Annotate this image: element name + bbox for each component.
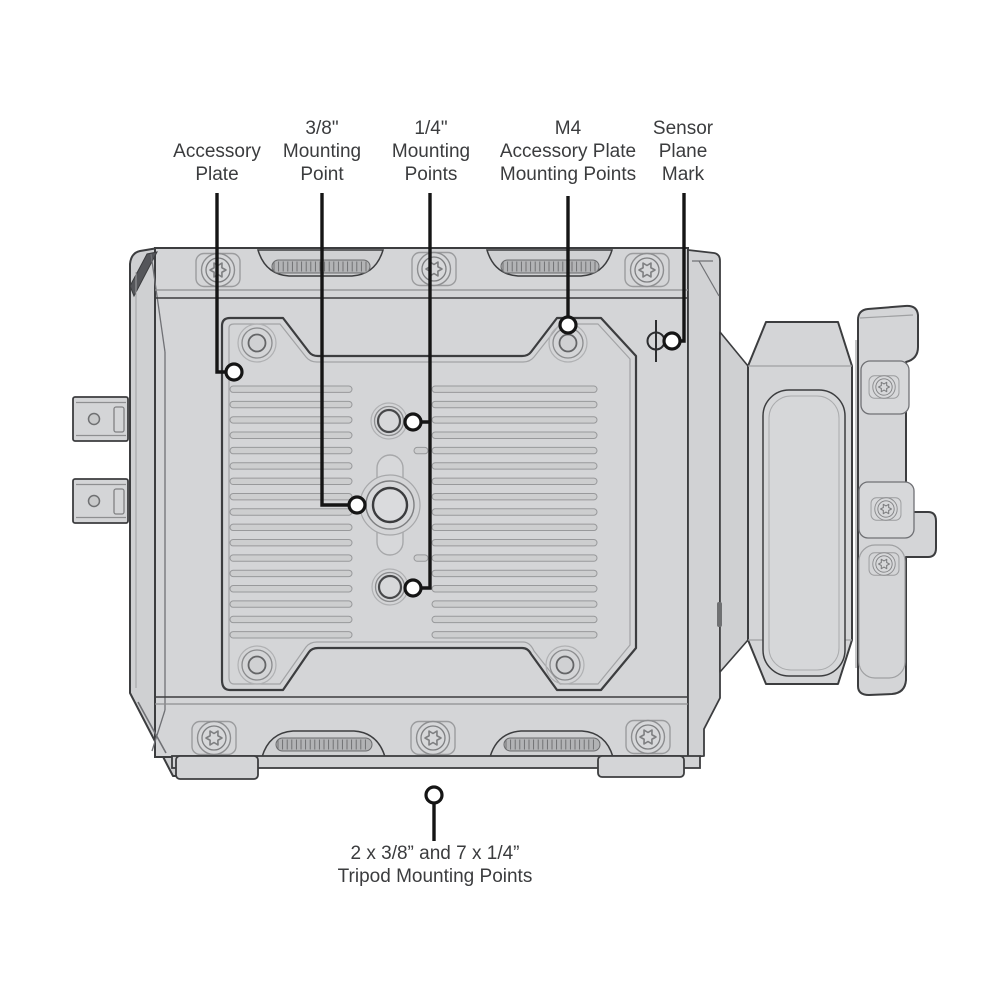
- label-line: 1/4": [392, 117, 470, 140]
- knurl-strip: [501, 260, 599, 273]
- vent-rib: [432, 493, 597, 499]
- vent-rib: [230, 493, 352, 499]
- vent-rib: [432, 432, 597, 438]
- label-line: Mark: [653, 163, 713, 186]
- label-line: Mounting: [283, 140, 361, 163]
- label-line: Mounting Points: [500, 163, 636, 186]
- vent-rib: [432, 417, 597, 423]
- body-right-cap: [688, 250, 720, 757]
- vent-rib: [230, 463, 352, 469]
- label-tripod-mounting-points: 2 x 3/8” and 7 x 1/4” Tripod Mounting Po…: [338, 842, 533, 888]
- vent-rib: [230, 524, 352, 530]
- vent-rib: [432, 616, 597, 622]
- vent-rib: [230, 401, 352, 407]
- leader-endpoint: [560, 317, 576, 333]
- vent-rib: [230, 616, 352, 622]
- vent-rib: [432, 463, 597, 469]
- label-m4-accessory-plate-mounting-points: M4 Accessory Plate Mounting Points: [500, 117, 636, 186]
- vent-rib: [432, 386, 597, 392]
- leader-endpoint: [349, 497, 365, 513]
- vent-rib: [230, 509, 352, 515]
- leader-endpoint: [405, 414, 421, 430]
- label-line: Plate: [173, 163, 261, 186]
- vent-rib: [230, 555, 352, 561]
- vent-rib: [432, 555, 597, 561]
- label-sensor-plane-mark: Sensor Plane Mark: [653, 117, 713, 186]
- bnc-connector-icon: [73, 397, 128, 441]
- vent-rib: [432, 447, 597, 453]
- label-line: Accessory: [173, 140, 261, 163]
- vent-rib: [230, 540, 352, 546]
- vent-rib: [414, 447, 428, 453]
- label-line: Points: [392, 163, 470, 186]
- body-slot-detail: [717, 602, 722, 627]
- vent-rib: [230, 386, 352, 392]
- vent-rib: [432, 632, 597, 638]
- vent-rib: [432, 478, 597, 484]
- bnc-connector-icon: [73, 479, 128, 523]
- vent-rib: [432, 601, 597, 607]
- vent-rib: [230, 570, 352, 576]
- rail-foot: [176, 756, 258, 779]
- vent-rib: [414, 555, 428, 561]
- mount-cone: [720, 332, 748, 672]
- label-3-8-mounting-point: 3/8" Mounting Point: [283, 117, 361, 186]
- vent-rib: [432, 509, 597, 515]
- leader-endpoint: [226, 364, 242, 380]
- barrel-face: [763, 390, 845, 676]
- label-1-4-mounting-points: 1/4" Mounting Points: [392, 117, 470, 186]
- camera-bottom-diagram: Accessory Plate 3/8" Mounting Point 1/4"…: [0, 0, 1000, 1000]
- rail-foot: [598, 756, 684, 777]
- label-line: Mounting: [392, 140, 470, 163]
- vent-rib: [432, 570, 597, 576]
- bnc-connectors: [73, 397, 128, 523]
- lens-mount-assembly: [717, 306, 936, 695]
- vent-rib: [432, 586, 597, 592]
- vent-rib: [432, 524, 597, 530]
- label-line: Plane: [653, 140, 713, 163]
- label-line: Tripod Mounting Points: [338, 865, 533, 888]
- label-line: Point: [283, 163, 361, 186]
- label-line: Accessory Plate: [500, 140, 636, 163]
- vent-rib: [230, 417, 352, 423]
- vent-rib: [230, 447, 352, 453]
- bottom-rail: [172, 756, 700, 779]
- vent-rib: [230, 586, 352, 592]
- leader-endpoint: [664, 333, 680, 349]
- vent-rib: [230, 632, 352, 638]
- label-line: M4: [500, 117, 636, 140]
- label-line: 2 x 3/8” and 7 x 1/4”: [338, 842, 533, 865]
- vent-rib: [230, 601, 352, 607]
- vent-rib: [230, 432, 352, 438]
- label-line: 3/8": [283, 117, 361, 140]
- leader-endpoint: [426, 787, 442, 803]
- leader-endpoint: [405, 580, 421, 596]
- label-line: Sensor: [653, 117, 713, 140]
- label-accessory-plate: Accessory Plate: [173, 140, 261, 186]
- vent-rib: [432, 401, 597, 407]
- vent-rib: [230, 478, 352, 484]
- vent-rib: [432, 540, 597, 546]
